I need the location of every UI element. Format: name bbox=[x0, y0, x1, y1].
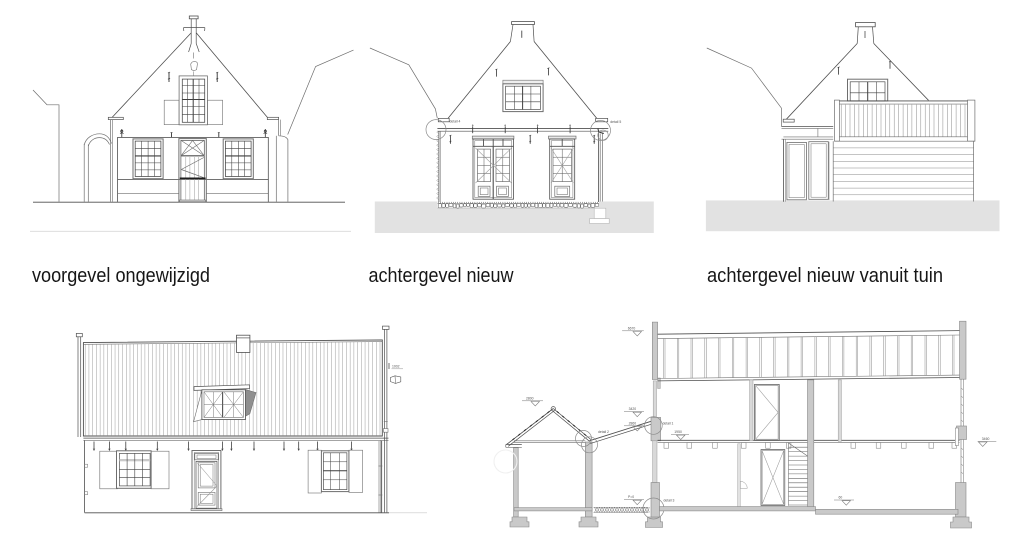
svg-text:detail 4: detail 4 bbox=[450, 120, 461, 124]
svg-text:detail 5: detail 5 bbox=[610, 120, 621, 124]
svg-text:detail 3: detail 3 bbox=[664, 499, 675, 503]
svg-text:3420: 3420 bbox=[629, 407, 637, 411]
svg-text:2860: 2860 bbox=[629, 421, 637, 425]
svg-text:3460: 3460 bbox=[982, 437, 990, 441]
svg-text:detail 2: detail 2 bbox=[598, 430, 609, 434]
svg-text:detail 1: detail 1 bbox=[663, 422, 674, 426]
svg-text:1950: 1950 bbox=[674, 430, 682, 434]
svg-text:P=0: P=0 bbox=[628, 495, 634, 499]
svg-text:2800: 2800 bbox=[526, 396, 534, 400]
svg-text:60: 60 bbox=[839, 496, 843, 500]
svg-text:1002: 1002 bbox=[392, 365, 400, 369]
svg-text:voorgevel ongewijzigd: voorgevel ongewijzigd bbox=[32, 264, 210, 287]
svg-text:achtergevel nieuw vanuit tuin: achtergevel nieuw vanuit tuin bbox=[707, 264, 943, 287]
svg-text:achtergevel nieuw: achtergevel nieuw bbox=[369, 264, 514, 287]
svg-text:6670: 6670 bbox=[628, 326, 636, 330]
